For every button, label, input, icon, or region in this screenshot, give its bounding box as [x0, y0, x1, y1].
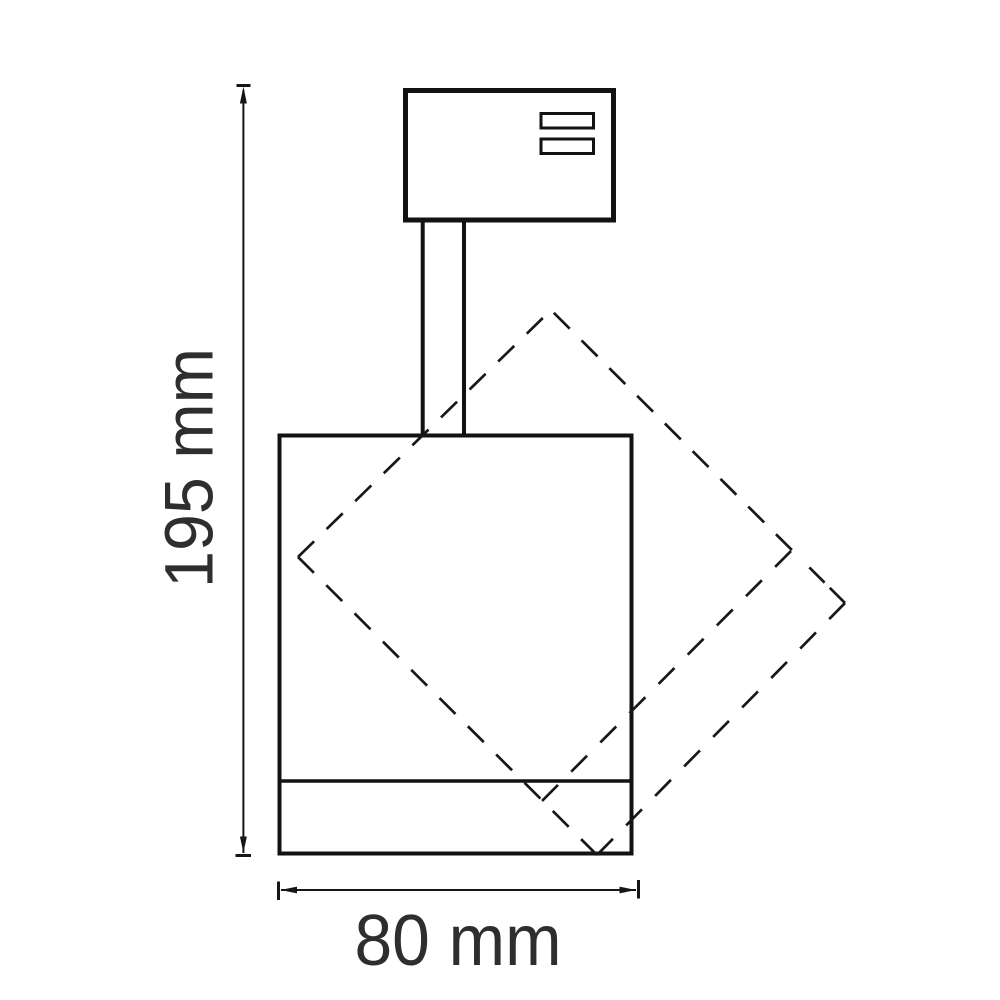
svg-text:195 mm: 195 mm: [152, 348, 228, 588]
svg-text:80 mm: 80 mm: [355, 900, 562, 981]
